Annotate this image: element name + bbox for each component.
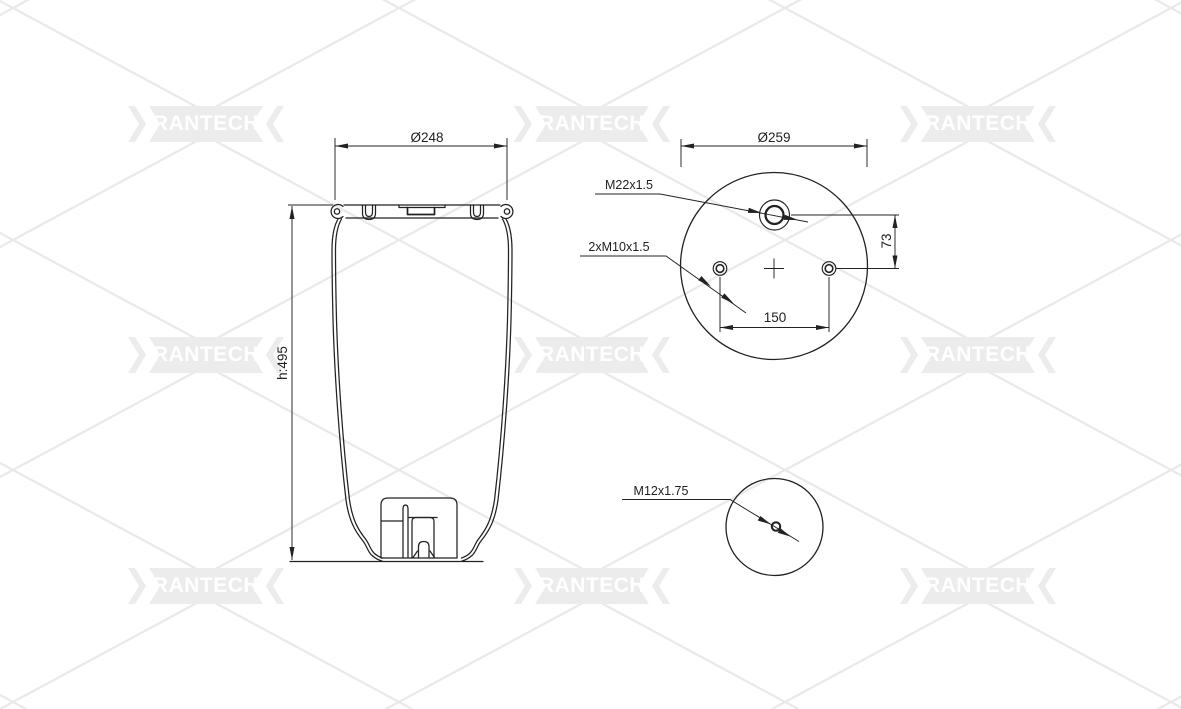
- arrowhead: [758, 516, 771, 525]
- center-mark: [764, 259, 784, 279]
- arrowhead: [778, 528, 791, 536]
- m22-thread-label: M22x1.5: [605, 178, 653, 192]
- arrowhead: [335, 144, 348, 149]
- drawing-page: RANTECH RANTECH RANTECH RANTECH RANTECH …: [0, 0, 1181, 709]
- technical-drawing: Ø248 h:495: [0, 0, 1181, 709]
- stud-holes: [713, 259, 836, 279]
- spacing-label: 150: [764, 310, 787, 325]
- bellows-piston: [290, 498, 483, 562]
- arrowhead: [720, 325, 733, 330]
- arrowhead: [893, 256, 898, 269]
- offset-label: 73: [879, 233, 894, 248]
- dimension-height: h:495: [275, 205, 333, 560]
- m10-thread-label: 2xM10x1.5: [588, 240, 649, 254]
- arrowhead: [290, 547, 295, 560]
- bottom-view: M12x1.75: [622, 479, 823, 576]
- dimension-top-diameter: Ø248: [335, 130, 507, 200]
- bellows-body: [332, 219, 512, 561]
- dimension-spacing-150: 150: [720, 277, 829, 332]
- m12-thread-label: M12x1.75: [634, 484, 689, 498]
- dimension-plate-diameter: Ø259: [681, 130, 867, 167]
- arrowhead: [893, 215, 898, 228]
- arrowhead: [290, 206, 295, 219]
- top-view: Ø259 M22x1.5: [580, 130, 899, 360]
- height-label: h:495: [275, 346, 290, 380]
- arrowhead: [816, 325, 829, 330]
- arrowhead: [681, 144, 694, 149]
- dimension-offset-73: 73: [791, 215, 899, 269]
- side-view: Ø248 h:495: [275, 130, 513, 562]
- arrowhead: [784, 215, 798, 220]
- arrowhead: [698, 276, 711, 287]
- top-diameter-label: Ø248: [410, 130, 443, 145]
- leader-m10: 2xM10x1.5: [580, 240, 746, 313]
- arrowhead: [854, 144, 867, 149]
- bellows-top-plate: [331, 205, 513, 220]
- plate-diameter-label: Ø259: [757, 130, 790, 145]
- arrowhead: [494, 144, 507, 149]
- piston-bolt: [419, 542, 430, 559]
- leader-m12: M12x1.75: [622, 484, 799, 542]
- arrowhead: [721, 293, 734, 304]
